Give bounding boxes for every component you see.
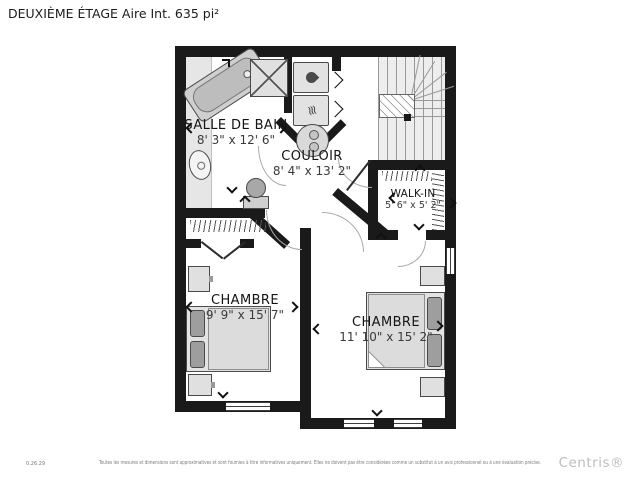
toilet-bowl (246, 178, 266, 198)
room-dimensions: 8' 4" x 13' 2" (250, 165, 374, 178)
window (446, 248, 455, 274)
dimension-arrow (226, 182, 237, 193)
wall (368, 160, 456, 170)
washer (293, 62, 329, 93)
footer-code: 0.26.29 (26, 461, 45, 467)
dryer: ≋ (293, 95, 329, 126)
sink-drain (196, 161, 205, 170)
room-label-bedroom-right: CHAMBRE 11' 10" x 15' 2" (324, 316, 448, 344)
wall (426, 230, 456, 240)
nightstand (420, 266, 445, 286)
door-arc (322, 212, 364, 252)
nightstand-knob (209, 276, 213, 282)
room-name: SALLE DE BAIN (184, 119, 288, 134)
nightstand-knob (211, 382, 215, 388)
water-drop-icon (303, 70, 319, 86)
room-dimensions: 9' 9" x 15' 7" (190, 309, 300, 322)
footer-disclaimer: Toutes les mesures et dimensions sont ap… (58, 460, 583, 466)
bifold-door (327, 101, 344, 118)
stair-post (404, 114, 411, 121)
room-label-hallway: COULOIR 8' 4" x 13' 2" (250, 150, 374, 178)
room-name: CHAMBRE (324, 316, 448, 331)
page-title: DEUXIÈME ÉTAGE Aire Int. 635 pi² (8, 6, 219, 21)
wall (300, 418, 456, 429)
door-arc (266, 210, 302, 250)
wall (332, 57, 341, 71)
dimension-arrow (413, 219, 424, 230)
dimension-arrow (371, 405, 382, 416)
window (226, 402, 270, 411)
wall (175, 239, 201, 248)
water-heater-valve (309, 130, 319, 140)
room-label-bathroom: SALLE DE BAIN 8' 3" x 12' 6" (184, 119, 288, 147)
pillow (190, 341, 205, 368)
wall (175, 46, 186, 412)
nightstand (188, 266, 210, 292)
dimension-arrow (222, 59, 230, 67)
closet-rod (190, 220, 266, 232)
room-label-bedroom-left: CHAMBRE 9' 9" x 15' 7" (190, 294, 300, 322)
closet-rod (382, 171, 432, 181)
window (344, 419, 374, 428)
door-arc (398, 241, 426, 267)
bifold-door (201, 241, 224, 259)
brand-logo: Centris® (559, 455, 624, 471)
floor-plan-page: DEUXIÈME ÉTAGE Aire Int. 635 pi² ≋ (0, 0, 640, 480)
nightstand (188, 374, 212, 396)
shower (250, 59, 288, 97)
dimension-arrow (312, 323, 323, 334)
wall (175, 46, 456, 57)
room-dimensions: 11' 10" x 15' 2" (324, 331, 448, 344)
nightstand (420, 377, 445, 397)
window (394, 419, 422, 428)
bifold-door (223, 241, 246, 259)
heat-waves-icon: ≋ (302, 103, 319, 117)
dimension-arrow (217, 387, 228, 398)
room-name: COULOIR (250, 150, 374, 165)
wall (300, 228, 311, 412)
bifold-door (327, 72, 344, 89)
room-name: CHAMBRE (190, 294, 300, 309)
room-dimensions: 8' 3" x 12' 6" (184, 134, 288, 147)
stair-treads (414, 100, 445, 124)
